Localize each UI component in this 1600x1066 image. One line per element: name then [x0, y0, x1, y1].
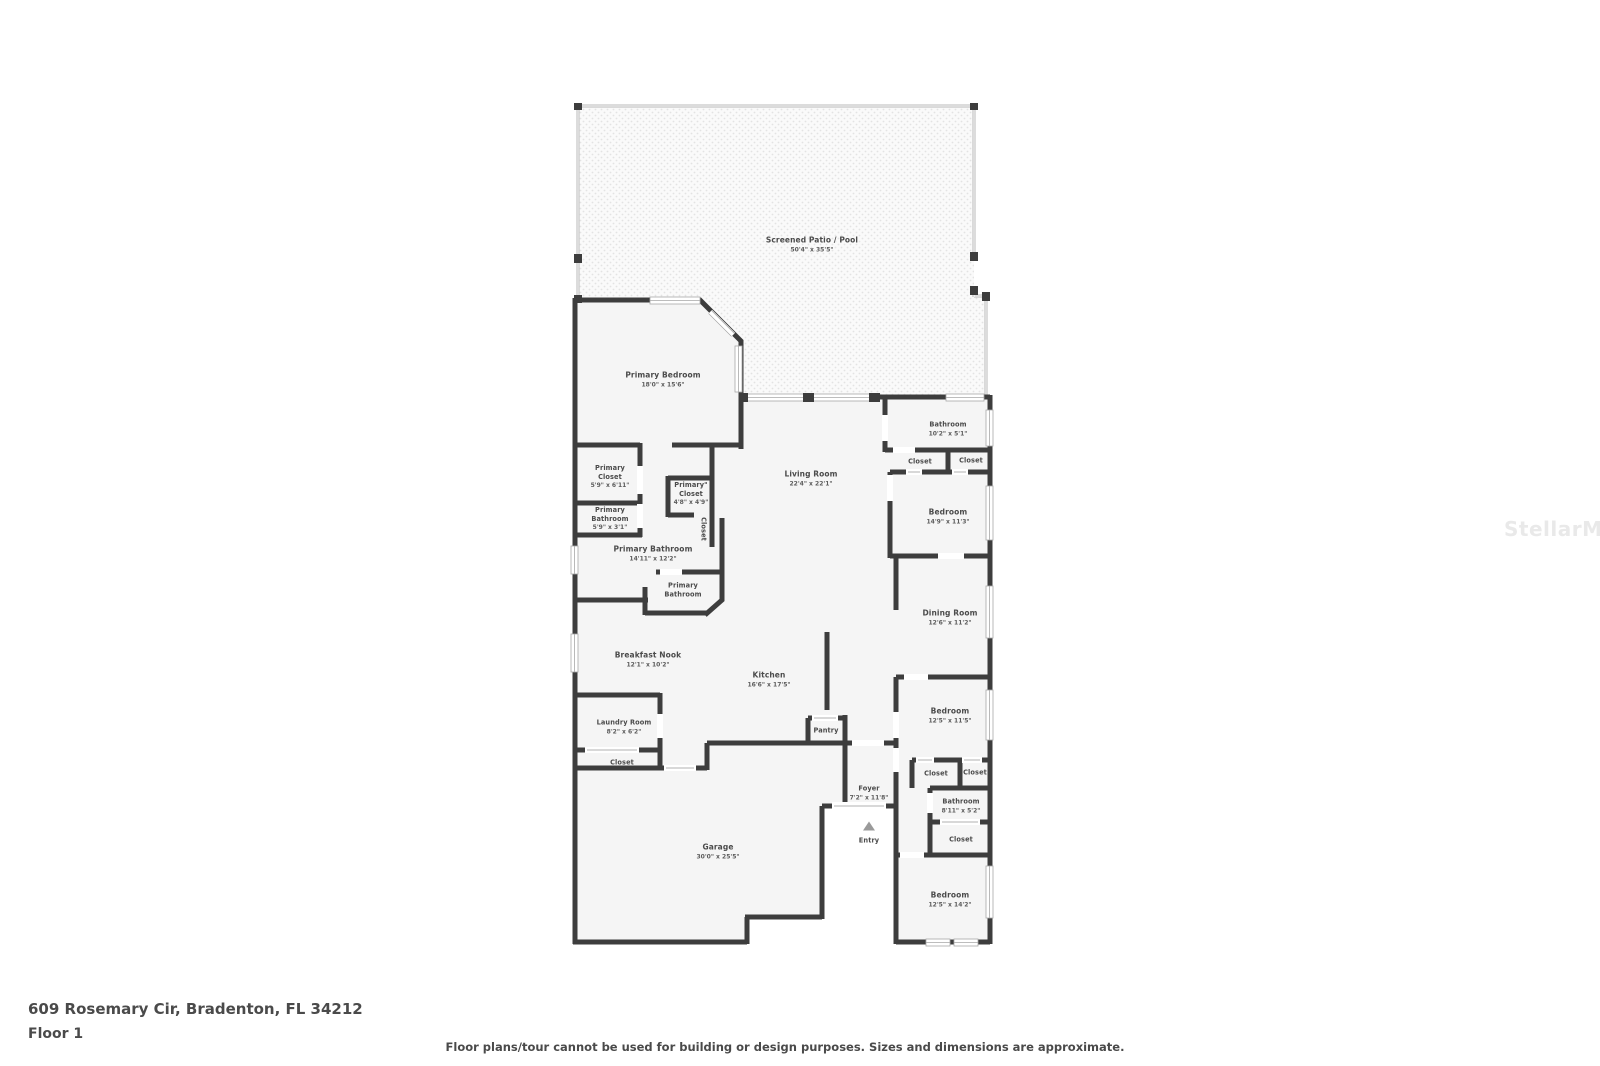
disclaimer-text: Floor plans/tour cannot be used for buil… [0, 1040, 1570, 1054]
address-text: 609 Rosemary Cir, Bradenton, FL 34212 [28, 1000, 363, 1018]
entry-arrow-icon [863, 822, 875, 831]
watermark: StellarMLS [1504, 517, 1600, 541]
floor-plan-page: Screened Patio / Pool50'4" x 35'5" Prima… [0, 0, 1600, 1066]
floor-plan-drawing [0, 0, 1600, 1066]
